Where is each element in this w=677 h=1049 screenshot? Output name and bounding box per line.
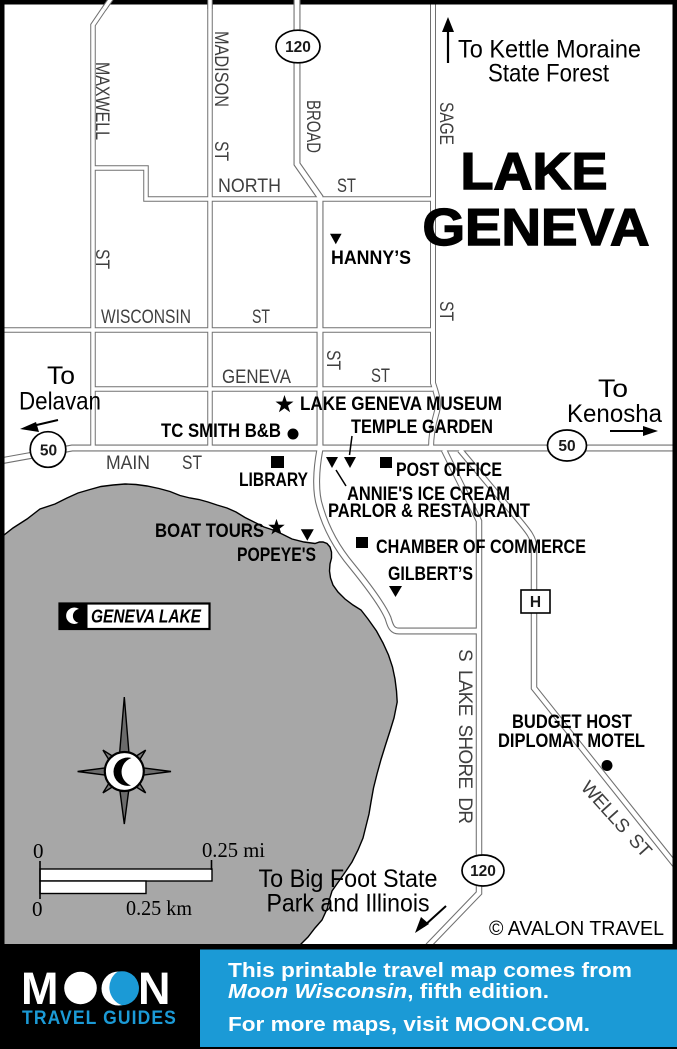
svg-text:BROAD: BROAD [302, 100, 323, 153]
svg-text:LIBRARY: LIBRARY [239, 470, 308, 491]
svg-text:Delavan: Delavan [19, 388, 101, 416]
svg-text:CHAMBER OF COMMERCE: CHAMBER OF COMMERCE [376, 537, 586, 558]
svg-text:MAXWELL: MAXWELL [91, 62, 112, 140]
svg-text:TEMPLE GARDEN: TEMPLE GARDEN [351, 417, 493, 438]
svg-text:0: 0 [33, 839, 44, 863]
svg-text:For more maps, visit MOON.COM.: For more maps, visit MOON.COM. [228, 1014, 590, 1036]
svg-text:120: 120 [285, 39, 311, 56]
svg-text:S LAKE SHORE DR: S LAKE SHORE DR [454, 649, 475, 824]
svg-text:LAKE GENEVA MUSEUM: LAKE GENEVA MUSEUM [300, 394, 502, 415]
svg-text:0: 0 [32, 897, 43, 921]
svg-text:ST: ST [252, 307, 270, 328]
svg-text:POPEYE'S: POPEYE'S [237, 545, 316, 566]
svg-text:MADISON: MADISON [210, 31, 231, 107]
svg-text:MAIN: MAIN [106, 453, 150, 474]
svg-text:H: H [530, 594, 541, 611]
svg-text:Moon Wisconsin, fifth edition.: Moon Wisconsin, fifth edition. [228, 981, 549, 1003]
svg-text:State Forest: State Forest [488, 60, 609, 88]
svg-text:Park and Illinois: Park and Illinois [267, 890, 430, 918]
svg-text:TRAVEL GUIDES: TRAVEL GUIDES [22, 1008, 177, 1029]
svg-text:ST: ST [210, 141, 231, 161]
svg-text:LAKE: LAKE [461, 143, 608, 201]
svg-text:50: 50 [40, 443, 57, 460]
svg-text:POST OFFICE: POST OFFICE [396, 460, 502, 481]
svg-text:This printable travel map come: This printable travel map comes from [228, 960, 632, 982]
svg-text:50: 50 [558, 438, 575, 455]
svg-text:SAGE: SAGE [435, 102, 456, 145]
svg-text:To: To [598, 375, 628, 403]
svg-text:ST: ST [371, 366, 390, 387]
svg-text:N: N [138, 963, 171, 1014]
svg-text:DIPLOMAT MOTEL: DIPLOMAT MOTEL [498, 731, 645, 752]
svg-text:TC SMITH B&B: TC SMITH B&B [161, 421, 281, 442]
svg-text:GENEVA: GENEVA [423, 199, 650, 257]
svg-text:© AVALON TRAVEL: © AVALON TRAVEL [489, 917, 664, 940]
svg-text:ST: ST [337, 176, 356, 197]
svg-text:PARLOR & RESTAURANT: PARLOR & RESTAURANT [328, 501, 530, 522]
svg-text:GENEVA: GENEVA [222, 367, 291, 388]
svg-text:NORTH: NORTH [218, 176, 281, 197]
svg-text:0.25 mi: 0.25 mi [202, 838, 265, 862]
svg-text:ST: ST [322, 350, 343, 370]
svg-text:To: To [47, 362, 75, 390]
svg-text:ST: ST [182, 453, 202, 474]
svg-text:GILBERT’S: GILBERT’S [388, 564, 473, 585]
svg-text:ST: ST [435, 301, 456, 321]
svg-text:HANNY’S: HANNY’S [331, 248, 411, 269]
svg-text:0.25 km: 0.25 km [126, 896, 192, 920]
svg-text:BUDGET HOST: BUDGET HOST [512, 712, 632, 733]
svg-text:BOAT TOURS: BOAT TOURS [155, 521, 264, 542]
svg-text:GENEVA LAKE: GENEVA LAKE [91, 606, 202, 627]
svg-text:M: M [21, 963, 59, 1014]
svg-text:WISCONSIN: WISCONSIN [101, 307, 191, 328]
svg-text:120: 120 [470, 863, 496, 880]
svg-text:ST: ST [91, 249, 112, 269]
svg-text:Kenosha: Kenosha [567, 400, 662, 428]
